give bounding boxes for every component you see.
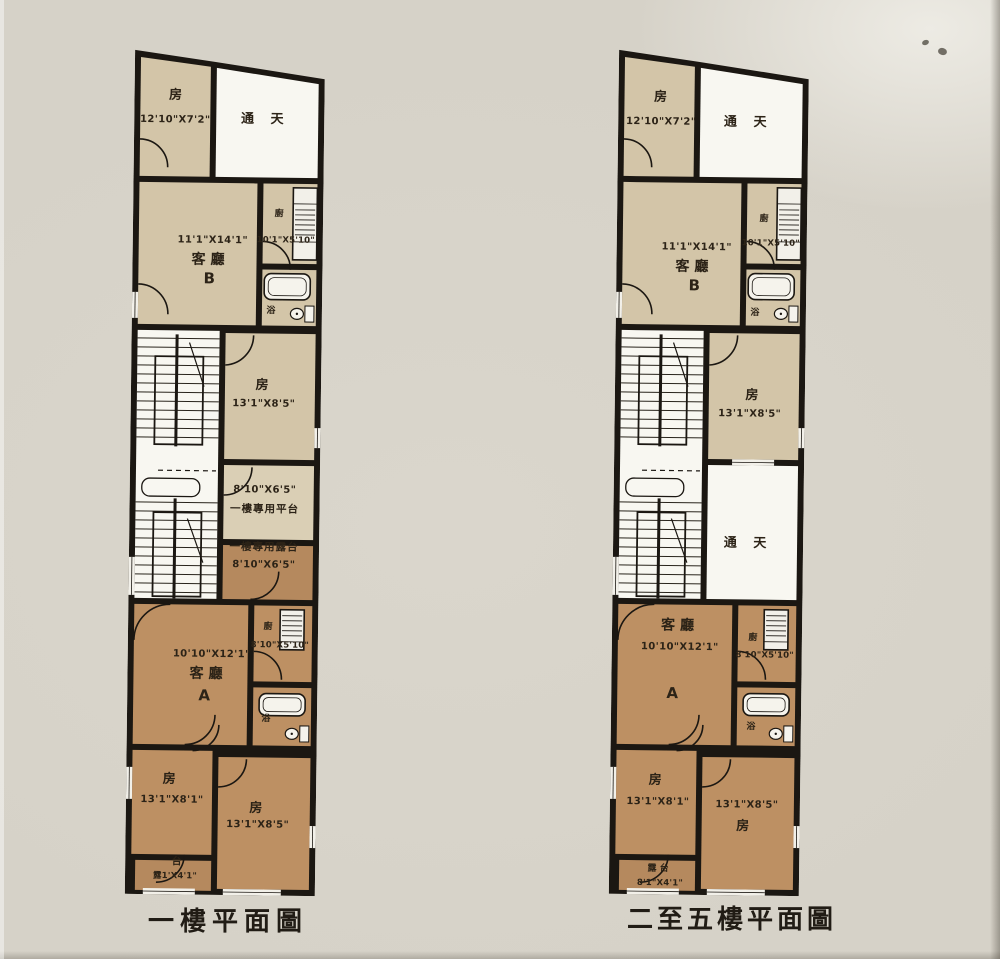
bathtub-icon: [259, 693, 305, 716]
room-dims-bedroom-top: 12'10"X7'2": [140, 115, 211, 126]
room-name-kitchen-a: 廚: [264, 623, 273, 632]
floorplan-first-floor: 房 12'10"X7'2" 通 天 11'1"X14'1" 客廳 B 廚 10'…: [125, 42, 325, 896]
scan-smudge: [937, 47, 948, 56]
room-bedroom-mid: [224, 333, 316, 460]
plan-caption-upper-floors: 二至五樓平面圖: [612, 899, 852, 936]
room-name-bath-b: 浴: [266, 307, 275, 316]
room-unit-living-a: A: [666, 686, 678, 701]
room-dims-bedroom-bl: 13'1"X8'1": [626, 797, 689, 808]
room-name-skylight-top: 通 天: [241, 113, 290, 127]
scanned-floorplan-sheet: 房 12'10"X7'2" 通 天 11'1"X14'1" 客廳 B 廚 10'…: [0, 0, 1000, 959]
floorplan-upper-floors: 房 12'10"X7'2" 通 天 11'1"X14'1" 客廳 B 廚 10'…: [609, 42, 809, 896]
room-name-bedroom-top: 房: [654, 91, 669, 104]
room-dims-bedroom-br: 13'1"X8'5": [226, 820, 289, 831]
room-name-bedroom-mid: 房: [745, 389, 760, 402]
scan-smudge: [921, 39, 929, 46]
plan-caption-first-floor: 一樓平面圖: [133, 901, 323, 938]
room-dims-living-a: 10'10"X12'1": [173, 649, 251, 660]
room-dims-kitchen-b: 10'1"X5'10": [257, 236, 315, 245]
kitchen-counter-icon: [777, 188, 802, 260]
room-dims-bedroom-mid: 13'1"X8'5": [232, 399, 295, 410]
room-name-bedroom-bl: 房: [649, 774, 664, 787]
room-dims-kitchen-a: 8'10"X5'10": [736, 651, 794, 660]
room-dims-living-a: 10'10"X12'1": [641, 642, 719, 653]
floorplan-drawing-upper-floors: [609, 42, 809, 896]
room-name-bath-b: 浴: [750, 309, 759, 318]
room-dims-living-b: 11'1"X14'1": [178, 235, 249, 246]
room-name-bedroom-top: 房: [169, 89, 184, 102]
room-dims-bedroom-top: 12'10"X7'2": [626, 117, 697, 128]
room-name-kitchen-b: 廚: [275, 210, 284, 219]
kitchen-counter-icon: [764, 610, 788, 650]
page-edge-shadow-right: [990, 0, 1000, 959]
room-name-living-a: 客廳: [661, 618, 699, 632]
room-name-bedroom-br: 房: [249, 802, 264, 815]
room-dims-kitchen-a: 8'10"X5'10": [251, 641, 309, 650]
room-name-bedroom-br: 房: [736, 820, 751, 833]
room-dims-terrace-bottom: 露1'X4'1": [153, 872, 197, 881]
room-name-living-a: 客廳: [189, 667, 227, 681]
room-living-b: [622, 182, 742, 325]
page-edge-highlight-left: [0, 0, 4, 959]
room-dims-terrace-mid: 8'10"X6'5": [232, 560, 295, 571]
floorplan-drawing-first-floor: [125, 42, 325, 896]
page-edge-shadow-bottom: [0, 951, 1000, 959]
room-name-living-b: 客廳: [191, 253, 229, 267]
room-dims-bedroom-bl: 13'1"X8'1": [140, 795, 203, 806]
room-unit-living-a: A: [198, 688, 210, 703]
room-name-living-b: 客廳: [675, 260, 713, 274]
room-dims-bedroom-br: 13'1"X8'5": [715, 800, 778, 811]
room-name-bath-a: 浴: [261, 715, 270, 724]
room-dims-living-b: 11'1"X14'1": [661, 242, 732, 253]
room-name-skylight-mid: 通 天: [724, 537, 773, 551]
room-name-kitchen-a: 廚: [748, 634, 757, 643]
room-skylight-mid: [706, 465, 798, 600]
room-name-kitchen-b: 廚: [759, 215, 768, 224]
bathtub-icon: [748, 273, 794, 300]
room-unit-living-b: B: [204, 271, 216, 286]
room-dims-kitchen-b: 10'1"X5'10": [742, 239, 800, 248]
room-dims-bedroom-mid: 13'1"X8'5": [718, 409, 781, 420]
room-dims-terrace-bottom: 8'1"X4'1": [637, 879, 683, 888]
room-name-bedroom-mid: 房: [255, 379, 270, 392]
room-name-bedroom-bl: 房: [163, 773, 178, 786]
room-name-platform: 一樓專用平台: [230, 504, 299, 515]
room-unit-living-b: B: [688, 278, 700, 293]
bathtub-icon: [264, 273, 310, 300]
room-name-skylight-top: 通 天: [724, 116, 773, 130]
kitchen-counter-icon: [293, 188, 318, 260]
room-name-terrace-bottom: 台: [172, 857, 183, 867]
room-name-bath-a: 浴: [746, 723, 755, 732]
room-dims-platform: 8'10"X6'5": [233, 485, 296, 496]
room-name-terrace-mid: 一樓專用露台: [229, 542, 298, 553]
bathtub-icon: [743, 693, 789, 716]
room-name-terrace-bottom: 露 台: [647, 865, 668, 874]
